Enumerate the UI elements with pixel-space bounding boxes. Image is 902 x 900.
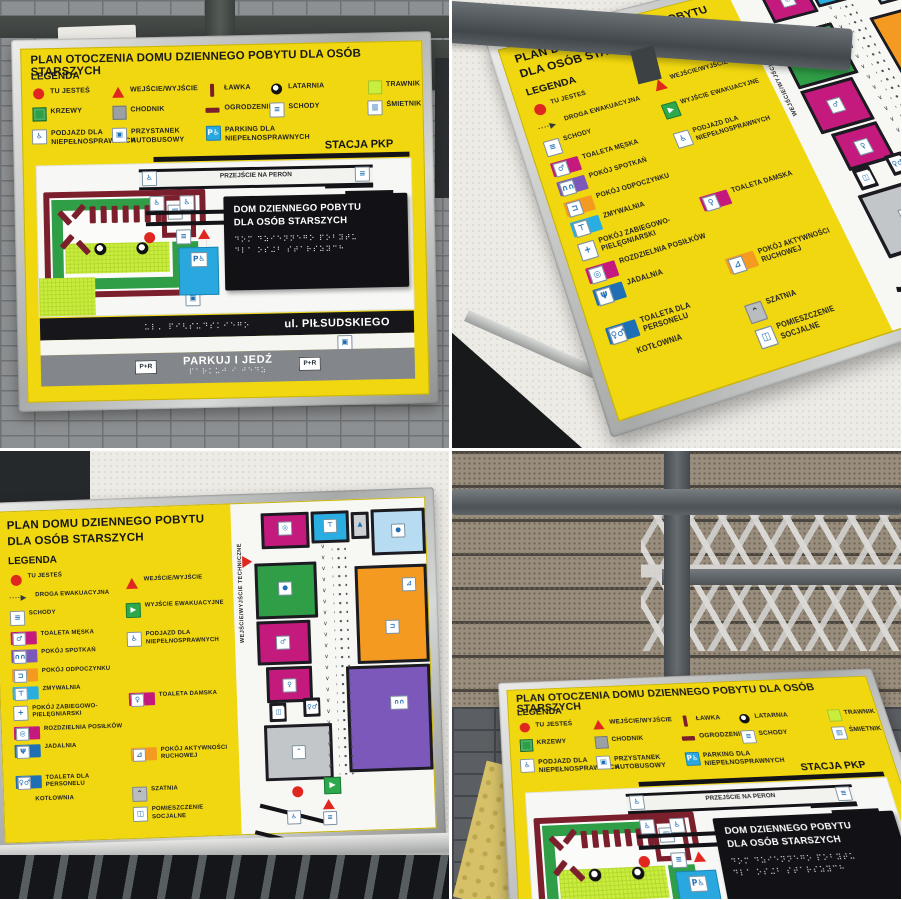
plate-icon (778, 0, 797, 8)
legend-swatch-icon (681, 732, 697, 744)
legend-item: DROGA EWAKUACYJNA (9, 589, 121, 606)
interior-board-frame: PLAN DOMU DZIENNEGO POBYTU DLA OSÓB STAR… (0, 487, 446, 852)
legend-item: TU JESTEŚ (31, 86, 109, 101)
female-icon (853, 138, 875, 156)
legend-left-column: TU JESTEŚ DROGA EWAKUACYJNA SCHODY TOALE… (8, 570, 128, 809)
legend-item-label: PODJAZD DLA NIEPEŁNOSPRAWNYCH (692, 105, 783, 144)
legend-item: POKÓJ ZABIEGOWO-PIELĘGNIARSKI (13, 702, 125, 721)
legend-item-label: ROZDZIELNIA POSIŁKÓW (44, 723, 123, 734)
technical-entrance-label: WEJŚCIE/WYJŚCIE TECHNICZNE (235, 528, 248, 658)
bed-icon (385, 620, 399, 634)
wheelchair-icon (179, 195, 194, 210)
room-wc (303, 697, 321, 717)
legend-item-label: LATARNIA (754, 711, 789, 720)
legend-item-label: TU JESTEŚ (535, 720, 573, 729)
legend-item-label: SCHODY (29, 610, 56, 619)
legend-item-label: WEJŚCIE/WYJŚCIE (130, 84, 198, 95)
legend-item: POKÓJ ODPOCZYNKU (12, 665, 124, 682)
legend-item-label: OGRODZENIE (224, 103, 273, 113)
wc-icon (306, 701, 318, 713)
legend-item: CHODNIK (593, 733, 681, 750)
legend-item-label: TU JESTEŚ (50, 86, 90, 96)
legend-swatch-icon (31, 107, 46, 120)
bench-shadow (435, 58, 449, 198)
surroundings-board-frame: PLAN OTOCZENIA DOMU DZIENNEGO POBYTU DLA… (498, 668, 901, 899)
legend-item: TOALETA MĘSKA (11, 628, 123, 645)
legend-item-label: PARKING DLA NIEPEŁNOSPRAWNYCH (225, 124, 310, 144)
legend-item-label: PRZYSTANEK AUTOBUSOWY (131, 126, 204, 146)
legend-item-label: PODJAZD DLA NIEPEŁNOSPRAWNYCH (146, 629, 229, 647)
legend-item: ŁAWKA (678, 713, 737, 726)
legend-item-label: SZATNIA (151, 785, 178, 794)
legend-swatch-icon (367, 100, 382, 115)
railing-bar (662, 569, 901, 585)
legend-item-label: PARKING DLA NIEPEŁNOSPRAWNYCH (702, 748, 786, 768)
legend-item: TOALETA DAMSKA (129, 690, 231, 707)
legend-swatch-icon (205, 104, 220, 117)
legend-item-label: LATARNIA (288, 81, 325, 91)
bench-slats (0, 855, 449, 899)
legend-item: KRZEWY (519, 737, 593, 753)
legend-item-label: KOTŁOWNIA (35, 795, 74, 804)
room-rozdzielnia-posilkow (758, 0, 819, 23)
station-label: STACJA PKP (325, 138, 394, 151)
legend-item: PARKING DLA NIEPEŁNOSPRAWNYCH (206, 125, 268, 144)
wheelchair-icon (149, 196, 164, 211)
disabled-parking-icon (190, 252, 207, 267)
legend-item-label: CHODNIK (130, 105, 164, 115)
legend-item: SCHODY (269, 101, 365, 118)
room-zmywalnia (310, 510, 349, 543)
legend-item-label: SZATNIA (765, 289, 799, 308)
photo-surroundings-front: PLAN OTOCZENIA DOMU DZIENNEGO POBYTU DLA… (0, 0, 449, 448)
circle-icon (278, 581, 292, 595)
hanger-icon (292, 745, 306, 759)
legend-item: SCHODY (10, 607, 122, 626)
legend-item-label: JADALNIA (44, 743, 76, 752)
photo-collage: PLAN OTOCZENIA DOMU DZIENNEGO POBYTU DLA… (0, 0, 902, 900)
photo-interior-angled: PLAN DOMU DZIENNEGO POBYTU DLA OSÓB STAR… (452, 0, 901, 448)
technical-entrance-marker (242, 556, 252, 568)
building-sign: DOM DZIENNEGO POBYTU DLA OSÓB STARSZYCH … (712, 811, 901, 899)
site-map-area: PRZEJŚCIE NA PERON (526, 778, 901, 899)
legend-swatch-icon (367, 80, 382, 93)
you-are-here-marker (292, 786, 303, 797)
legend-swatch-icon (206, 126, 221, 141)
legend-item: TOALETA DAMSKA (699, 166, 812, 211)
legend-item: POKÓJ SPOTKAŃ (11, 646, 123, 663)
legend-item-label: CHODNIK (611, 735, 644, 744)
triangle-icon (354, 519, 366, 531)
entrance-marker (323, 799, 335, 809)
bus-stop-icon (337, 335, 352, 350)
handrail-pole (452, 489, 901, 515)
legend-swatch-icon (14, 726, 40, 740)
platform-crossing-label: PRZEJŚCIE NA PERON (139, 169, 373, 181)
male-icon (826, 97, 847, 114)
pr-badge: P+R (299, 357, 321, 371)
legend-item: LATARNIA (736, 710, 827, 725)
legend-swatch-icon (12, 668, 38, 682)
legend-swatch-icon (132, 786, 148, 802)
legend-item-label: JADALNIA (626, 269, 665, 289)
legend-swatch-icon (592, 281, 627, 306)
disabled-parking-icon (688, 875, 708, 892)
surroundings-board: PLAN OTOCZENIA DOMU DZIENNEGO POBYTU DLA… (20, 40, 429, 402)
legend-item-label: WEJŚCIE/WYJŚCIE (144, 574, 203, 584)
legend-swatch-icon (16, 775, 42, 789)
legend-swatch-icon (563, 194, 596, 216)
bottle-icon (272, 707, 284, 719)
wheelchair-icon (142, 171, 157, 186)
legend-item: PRZYSTANEK AUTOBUSOWY (596, 752, 686, 772)
legend-swatch-icon (8, 574, 23, 588)
legend-item-label: KRZEWY (50, 107, 82, 117)
legend-item-label: TRAWNIK (386, 79, 420, 89)
legend-item-label: KRZEWY (536, 738, 566, 747)
path-step-line (325, 183, 373, 188)
legend-item-label: TU JESTEŚ (27, 572, 62, 581)
legend-item: OGRODZENIE (205, 103, 267, 119)
legend-swatch-icon (11, 631, 37, 645)
site-map-area: PRZEJŚCIE NA PERON (37, 159, 414, 317)
legend-swatch-icon (596, 756, 612, 770)
legend-swatch-icon (520, 759, 535, 773)
legend-item: ŁAWKA (205, 83, 267, 97)
interior-board: PLAN DOMU DZIENNEGO POBYTU DLA OSÓB STAR… (0, 497, 437, 844)
legend-item-label: ŚMIETNIK (848, 725, 883, 734)
legend-swatch-icon (550, 155, 582, 176)
legend: TU JESTEŚ WEJŚCIE/WYJŚCIE ŁAWKA LATARNIA… (31, 80, 416, 148)
wheelchair-icon (669, 818, 686, 834)
legend-swatch-icon (831, 726, 849, 740)
legend-swatch-icon (14, 744, 40, 758)
stairs-icon (670, 852, 688, 868)
wheelchair-icon (639, 819, 656, 835)
legend-item: TRAWNIK (367, 79, 423, 93)
ramp-line (896, 287, 901, 292)
legend-swatch-icon (570, 215, 604, 238)
legend-swatch-icon (125, 577, 140, 591)
legend-swatch-icon (133, 807, 149, 823)
legend-swatch-icon (536, 117, 563, 136)
legend-item: PODJAZD DLA NIEPEŁNOSPRAWNYCH (32, 128, 110, 148)
legend-item-label: SCHODY (288, 102, 319, 112)
legend-item-label: SCHODY (563, 129, 594, 145)
legend-swatch-icon (31, 87, 46, 100)
street-name: ul. PIŁSUDSKIEGO (284, 316, 390, 330)
legend-item: WEJŚCIE/WYJŚCIE (111, 84, 203, 99)
legend-swatch-icon (126, 602, 142, 618)
legend-item: POKÓJ AKTYWNOŚCI RUCHOWEJ (131, 744, 233, 763)
legend-item-label: POKÓJ AKTYWNOŚCI RUCHOWEJ (161, 744, 234, 762)
legend-swatch-icon (112, 128, 127, 143)
disabled-parking-area (675, 870, 726, 899)
legend-swatch-icon (591, 719, 606, 731)
legend-item: TU JESTEŚ (8, 570, 120, 587)
hanger-icon (897, 206, 901, 226)
legend-item-label: TOALETA DLA PERSONELU (46, 772, 128, 790)
room-pomieszczenie-socjalne (269, 703, 287, 723)
legend-item: PRZYSTANEK AUTOBUSOWY (112, 126, 204, 146)
legend-swatch-icon (736, 713, 752, 725)
evacuation-exit-icon (324, 777, 342, 795)
legend-item: TU JESTEŚ (518, 719, 591, 733)
photo-interior-front: PLAN DOMU DZIENNEGO POBYTU DLA OSÓB STAR… (0, 451, 449, 899)
platform-crossing-band: PRZEJŚCIE NA PERON (626, 784, 858, 814)
legend-item-label: ŚMIETNIK (386, 99, 421, 109)
entrance-marker (198, 229, 210, 239)
stairs-icon (323, 811, 337, 825)
legend-item-label: TOALETA MĘSKA (40, 629, 94, 639)
legend-item: ŚMIETNIK (367, 99, 423, 115)
legend-swatch-icon (518, 722, 533, 734)
faucet-icon (323, 519, 337, 533)
path-step-line (810, 802, 858, 808)
legend-swatch-icon (32, 129, 47, 144)
male-icon (276, 635, 290, 649)
room-rozdzielnia-posilkow (261, 512, 310, 550)
board-title: PLAN OTOCZENIA DOMU DZIENNEGO POBYTU DLA… (30, 46, 421, 78)
room-jadalnia (254, 561, 318, 619)
legend-item: TRAWNIK (826, 708, 880, 721)
legend-item-label: ŁAWKA (695, 714, 721, 723)
disabled-parking-area (178, 247, 219, 296)
legend-swatch-icon (593, 736, 608, 748)
legend-title: LEGENDA (517, 707, 563, 718)
legend-swatch-icon (826, 709, 843, 721)
legend-swatch-icon (678, 715, 694, 727)
legend-item-label: SCHODY (758, 729, 789, 738)
legend-item: PODJAZD DLA NIEPEŁNOSPRAWNYCH (127, 629, 229, 648)
room-zabiegowo-pielegniarski (858, 0, 901, 5)
room-zabiegowo-pielegniarski (370, 508, 426, 556)
surroundings-board: PLAN OTOCZENIA DOMU DZIENNEGO POBYTU DLA… (506, 676, 901, 899)
legend-item: JADALNIA (14, 741, 126, 758)
legend-swatch-icon (684, 752, 701, 766)
legend-item: ZMYWALNIA (12, 683, 124, 700)
photo-surroundings-pedestal: PLAN OTOCZENIA DOMU DZIENNEGO POBYTU DLA… (452, 451, 901, 899)
female-icon (282, 678, 296, 692)
room-pokoj-spotkan (346, 664, 434, 773)
legend-item: KRZEWY (31, 106, 109, 123)
legend-item-label: ZMYWALNIA (42, 685, 80, 694)
legend-swatch-icon (129, 692, 155, 706)
building-sign-braille: ⠙⠇⠁ ⠕⠎⠬⠃ ⠎⠞⠁⠗⠎⠵⠽⠉⠓ (234, 242, 400, 257)
legend-item: PODJAZD DLA NIEPEŁNOSPRAWNYCH (520, 756, 596, 776)
street-braille: ⠥⠇⠄ ⠏⠊⠣⠎⠥⠙⠎⠅⠊⠑⠛⠕ (144, 321, 251, 332)
pr-badge: P+R (135, 360, 157, 374)
legend-swatch-icon (11, 649, 37, 663)
legend-item-label: POMIESZCZENIE SOCJALNE (152, 804, 235, 822)
legend-swatch-icon (111, 106, 126, 119)
building-sign-line2: DLA OSÓB STARSZYCH (234, 214, 400, 230)
legend-item-label: WYJŚCIE EWAKUACYJNE (145, 599, 224, 610)
wheelchair-icon (629, 795, 646, 810)
legend-item: WEJŚCIE/WYJŚCIE (125, 574, 227, 591)
legend-item: ROZDZIELNIA POSIŁKÓW (14, 723, 126, 740)
legend-item-label: WEJŚCIE/WYJŚCIE (609, 716, 673, 726)
park-and-ride-band: PARKUJ I JEDŹ ⠏⠁⠗⠅⠥⠚ ⠊ ⠚⠑⠙⠵ P+R P+R (41, 348, 416, 387)
entrance-marker (692, 851, 706, 862)
legend-swatch-icon (12, 686, 38, 700)
legend-swatch-icon (131, 747, 157, 761)
legend-item-label: POKÓJ SPOTKAŃ (41, 647, 96, 657)
building-sign: DOM DZIENNEGO POBYTU DLA OSÓB STARSZYCH … (223, 193, 409, 291)
legend-item-label: DROGA EWAKUACYJNA (35, 589, 109, 599)
surroundings-board-frame: PLAN OTOCZENIA DOMU DZIENNEGO POBYTU DLA… (11, 31, 439, 412)
legend-item-label: POKÓJ ODPOCZYNKU (42, 665, 111, 675)
legend-swatch-icon (269, 102, 284, 117)
legend-swatch-icon (519, 739, 534, 751)
legend-item: CHODNIK (111, 104, 203, 121)
legend-swatch-icon (740, 730, 757, 744)
legend-item: LATARNIA (269, 81, 365, 96)
room-small-cell (351, 512, 370, 540)
legend-right-column: WEJŚCIE/WYJŚCIE WYJŚCIE EWAKUACYJNE PODJ… (124, 567, 235, 823)
legend-item-label: TOALETA DAMSKA (731, 170, 795, 196)
shoe-icon (402, 577, 416, 591)
wc-icon (889, 156, 901, 172)
legend-swatch-icon (13, 705, 29, 721)
legend-title: LEGENDA (8, 554, 57, 567)
legend-item: PARKING DLA NIEPEŁNOSPRAWNYCH (684, 750, 746, 769)
station-label: STACJA PKP (799, 759, 867, 773)
legend-swatch-icon (699, 189, 733, 211)
legend-item: WYJŚCIE EWAKUACYJNE (126, 599, 228, 618)
legend-item-label: TOALETA DAMSKA (159, 690, 218, 700)
legend-title: LEGENDA (31, 71, 80, 83)
room-toaleta-meska (256, 620, 312, 666)
legend-swatch-icon (127, 632, 143, 648)
evacuation-route-trail (332, 542, 354, 774)
wheelchair-icon (287, 810, 301, 824)
legend-swatch-icon (585, 260, 619, 284)
legend-item: SCHODY (740, 727, 832, 744)
legend-swatch-icon (556, 175, 589, 197)
legend-item-label: POKÓJ ZABIEGOWO-PIELĘGNIARSKI (32, 702, 125, 721)
legend-item-label: PRZYSTANEK AUTOBUSOWY (614, 752, 686, 771)
legend-swatch-icon (111, 86, 126, 99)
legend-item: SZATNIA (132, 783, 234, 802)
room-wc (884, 151, 901, 176)
legend-item-label: ŁAWKA (224, 83, 251, 93)
legend-item: OGRODZENIE (681, 731, 741, 747)
legend-swatch-icon (269, 82, 284, 95)
plate-icon (278, 521, 292, 535)
legend-swatch-icon (605, 319, 641, 345)
room-aktywnosci-ruchowej (354, 564, 429, 664)
legend-item: WEJŚCIE/WYJŚCIE (591, 716, 678, 731)
legend-item-label: TRAWNIK (843, 708, 876, 717)
circle-icon (391, 523, 405, 537)
lawn-patch (39, 277, 96, 316)
stairs-icon (176, 229, 191, 244)
legend-item-label: POKÓJ AKTYWNOŚCI RUCHOWEJ (757, 225, 842, 267)
legend-swatch-icon (205, 84, 220, 97)
legend-item: TOALETA DLA PERSONELU (16, 772, 128, 791)
legend-item: ŚMIETNIK (831, 725, 887, 740)
legend-swatch-icon (9, 592, 31, 606)
room-pomieszczenie-socjalne (852, 165, 880, 190)
floor-plan: ∨∨∨∨∨∨∨∨∨∨∨∨∨∨∨∨∨∨∨∨∨ (253, 508, 436, 830)
stairs-icon (355, 167, 370, 182)
legend-item-label: OGRODZENIE (699, 730, 746, 740)
people-icon (390, 695, 408, 710)
legend-swatch-icon (10, 611, 26, 627)
legend-item: POKÓJ AKTYWNOŚCI RUCHOWEJ (724, 225, 842, 277)
legend-swatch-icon (530, 101, 550, 118)
legend-swatch-icon (724, 250, 759, 274)
bottle-icon (857, 170, 876, 186)
